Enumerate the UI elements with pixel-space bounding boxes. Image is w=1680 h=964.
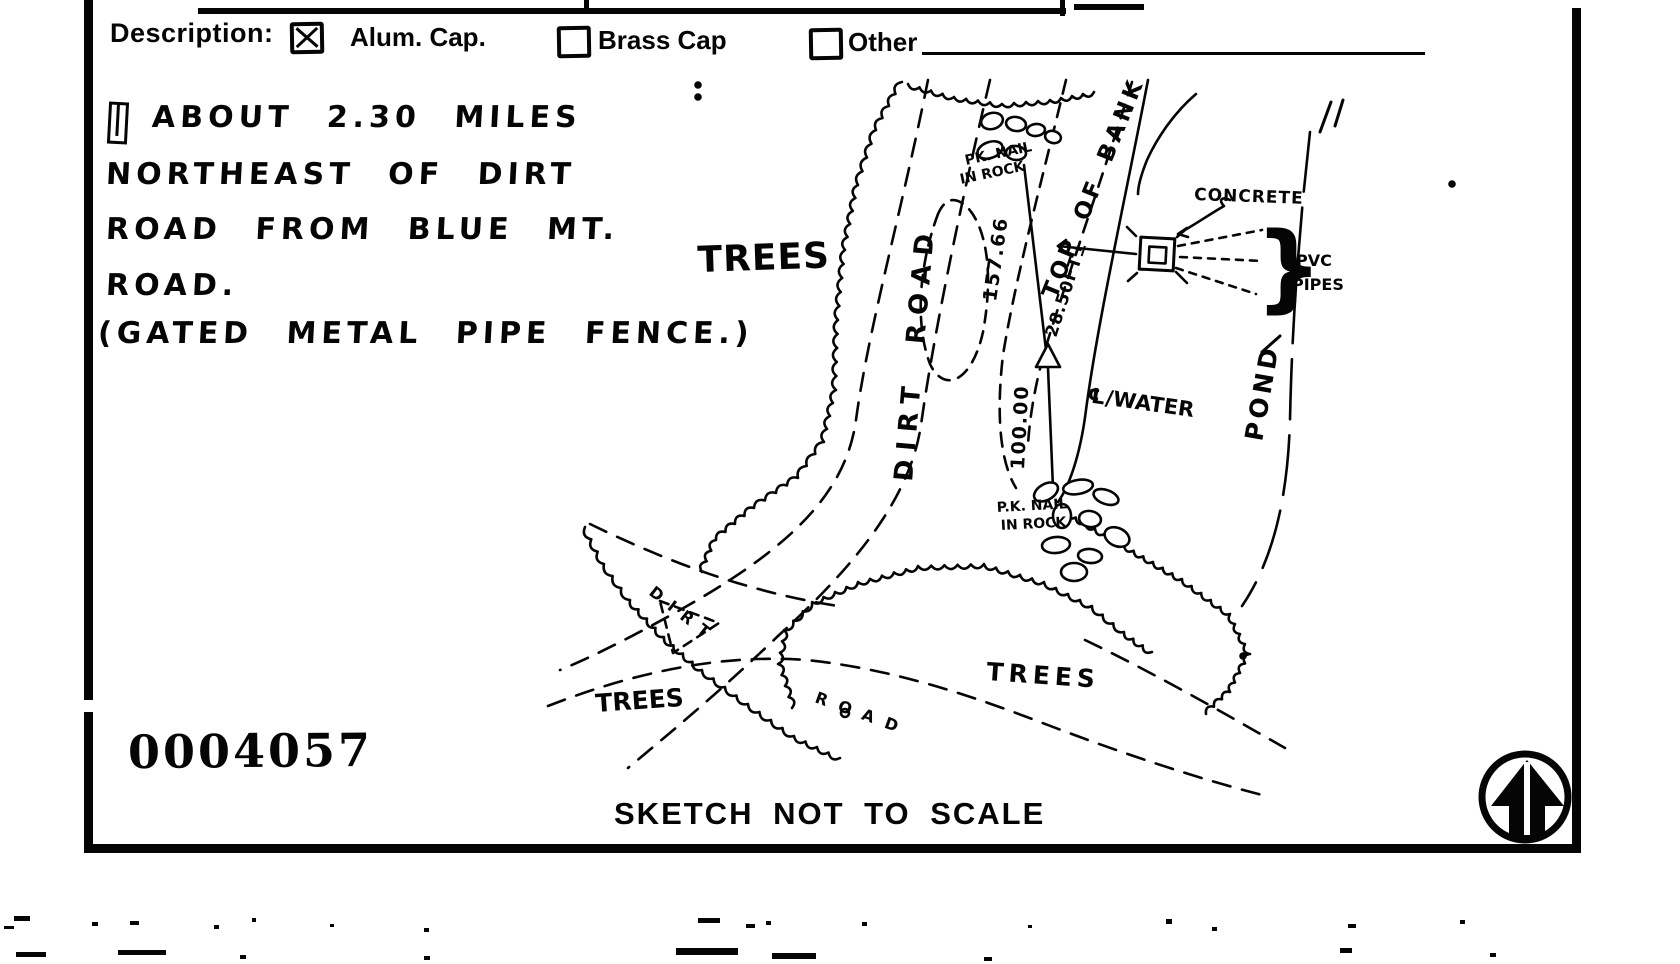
trees-label-lower-middle: TREES (986, 657, 1101, 694)
distance-157-label: 157.66 (979, 215, 1013, 303)
scan-dot (696, 95, 701, 100)
scan-dot (1450, 182, 1455, 187)
concrete-label: CONCRETE (1194, 185, 1304, 209)
north-arrow-icon (1482, 754, 1568, 840)
pvc-pipe-rays (1176, 230, 1262, 294)
station-triangle-symbol (1036, 344, 1060, 367)
scanned-survey-sketch-page: Description: Alum. Cap. Brass Cap Other … (0, 0, 1680, 964)
road-label-lower: ROAD (813, 688, 913, 740)
distance-100-label: 100.00 (1007, 384, 1033, 470)
tie-line-upper-nail (1024, 165, 1046, 350)
trees-label-upper: TREES (697, 235, 831, 281)
tie-line-lower-nail (1048, 368, 1053, 488)
lower-road-right-dashes (1085, 640, 1285, 748)
sketch-drawing (548, 80, 1455, 795)
pvc-label: PVC (1296, 251, 1332, 270)
site-sketch: TREES TREES TREES DIRT ROAD DIRT ROAD TO… (0, 0, 1680, 964)
centerline-water-label: ℄/WATER (1085, 383, 1195, 422)
treeline-top (908, 84, 1094, 107)
top-of-bank-label: TOP OF BANK (1037, 74, 1149, 302)
pk-nail-lower-label-2: IN ROCK (1000, 515, 1068, 534)
pipes-label: PIPES (1292, 275, 1344, 294)
scan-dot (696, 83, 701, 88)
far-bank-line (1138, 94, 1196, 194)
lower-road-upper-edge (590, 524, 838, 606)
concrete-monument (1127, 198, 1262, 294)
scan-noise (4, 916, 1496, 961)
scan-dot (1241, 654, 1246, 659)
scan-stray-strokes (1320, 100, 1343, 132)
sketch-labels: TREES TREES TREES DIRT ROAD DIRT ROAD TO… (594, 74, 1343, 740)
trees-label-lower-left: TREES (594, 683, 684, 718)
pond-label: POND (1239, 342, 1284, 443)
dirt-road-right-edge (628, 80, 990, 768)
